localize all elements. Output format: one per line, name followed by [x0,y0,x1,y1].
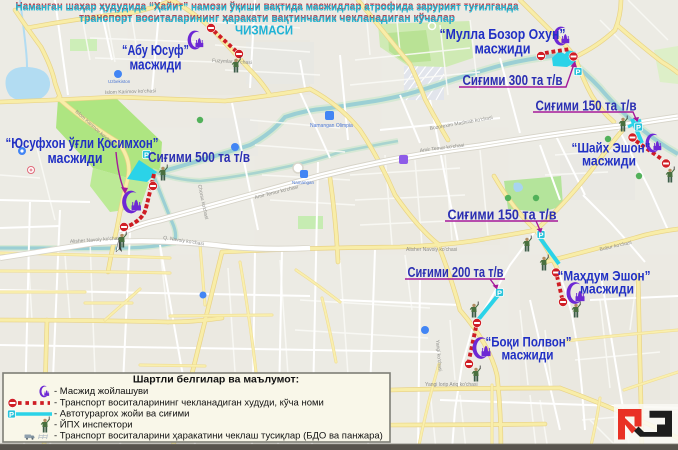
svg-text:- ЙПХ инспектори: - ЙПХ инспектори [54,419,133,431]
svg-text:масжиди: масжиди [130,57,182,74]
svg-text:масжиди: масжиди [502,347,554,363]
svg-text:Сиғими 300 та т/в: Сиғими 300 та т/в [463,73,563,89]
svg-text:Сиғими 200 та т/в: Сиғими 200 та т/в [408,265,504,281]
svg-text:- Транспорт воситаларининг чек: - Транспорт воситаларининг чекланадиган … [54,398,324,409]
svg-text:Сиғими 500 та т/в: Сиғими 500 та т/в [148,150,250,166]
svg-text:масжиди: масжиди [48,151,103,167]
svg-text:масжиди: масжиди [582,153,636,169]
svg-text:- Автотураргох жойи ва сиғими: - Автотураргох жойи ва сиғими [54,409,190,420]
svg-text:Сиғими 150 та т/в: Сиғими 150 та т/в [448,208,557,224]
svg-text:масжиди: масжиди [475,42,531,58]
svg-text:- Масжид жойлашуви: - Масжид жойлашуви [54,386,148,397]
svg-text:Сиғими 150 та т/в: Сиғими 150 та т/в [536,99,637,115]
svg-text:Yangi lorip Ariq ko'chasi: Yangi lorip Ariq ko'chasi [425,382,478,388]
svg-text:Шартли белгилар ва маълумот:: Шартли белгилар ва маълумот: [133,374,299,386]
svg-text:Uzbekiston: Uzbekiston [108,79,131,84]
svg-text:ЧИЗМАСИ: ЧИЗМАСИ [235,23,293,38]
svg-text:- Транспорт воситаларини ҳарак: - Транспорт воситаларини ҳаракатини чекл… [54,431,383,442]
svg-text:Namangan Olimpia: Namangan Olimpia [310,123,353,129]
svg-text:Alisher Navoiy ko'chasi: Alisher Navoiy ko'chasi [406,247,457,253]
svg-text:“Юсуфхон ўғли Қосимхон”: “Юсуфхон ўғли Қосимхон” [6,136,159,152]
svg-text:масжиди: масжиди [580,281,634,297]
